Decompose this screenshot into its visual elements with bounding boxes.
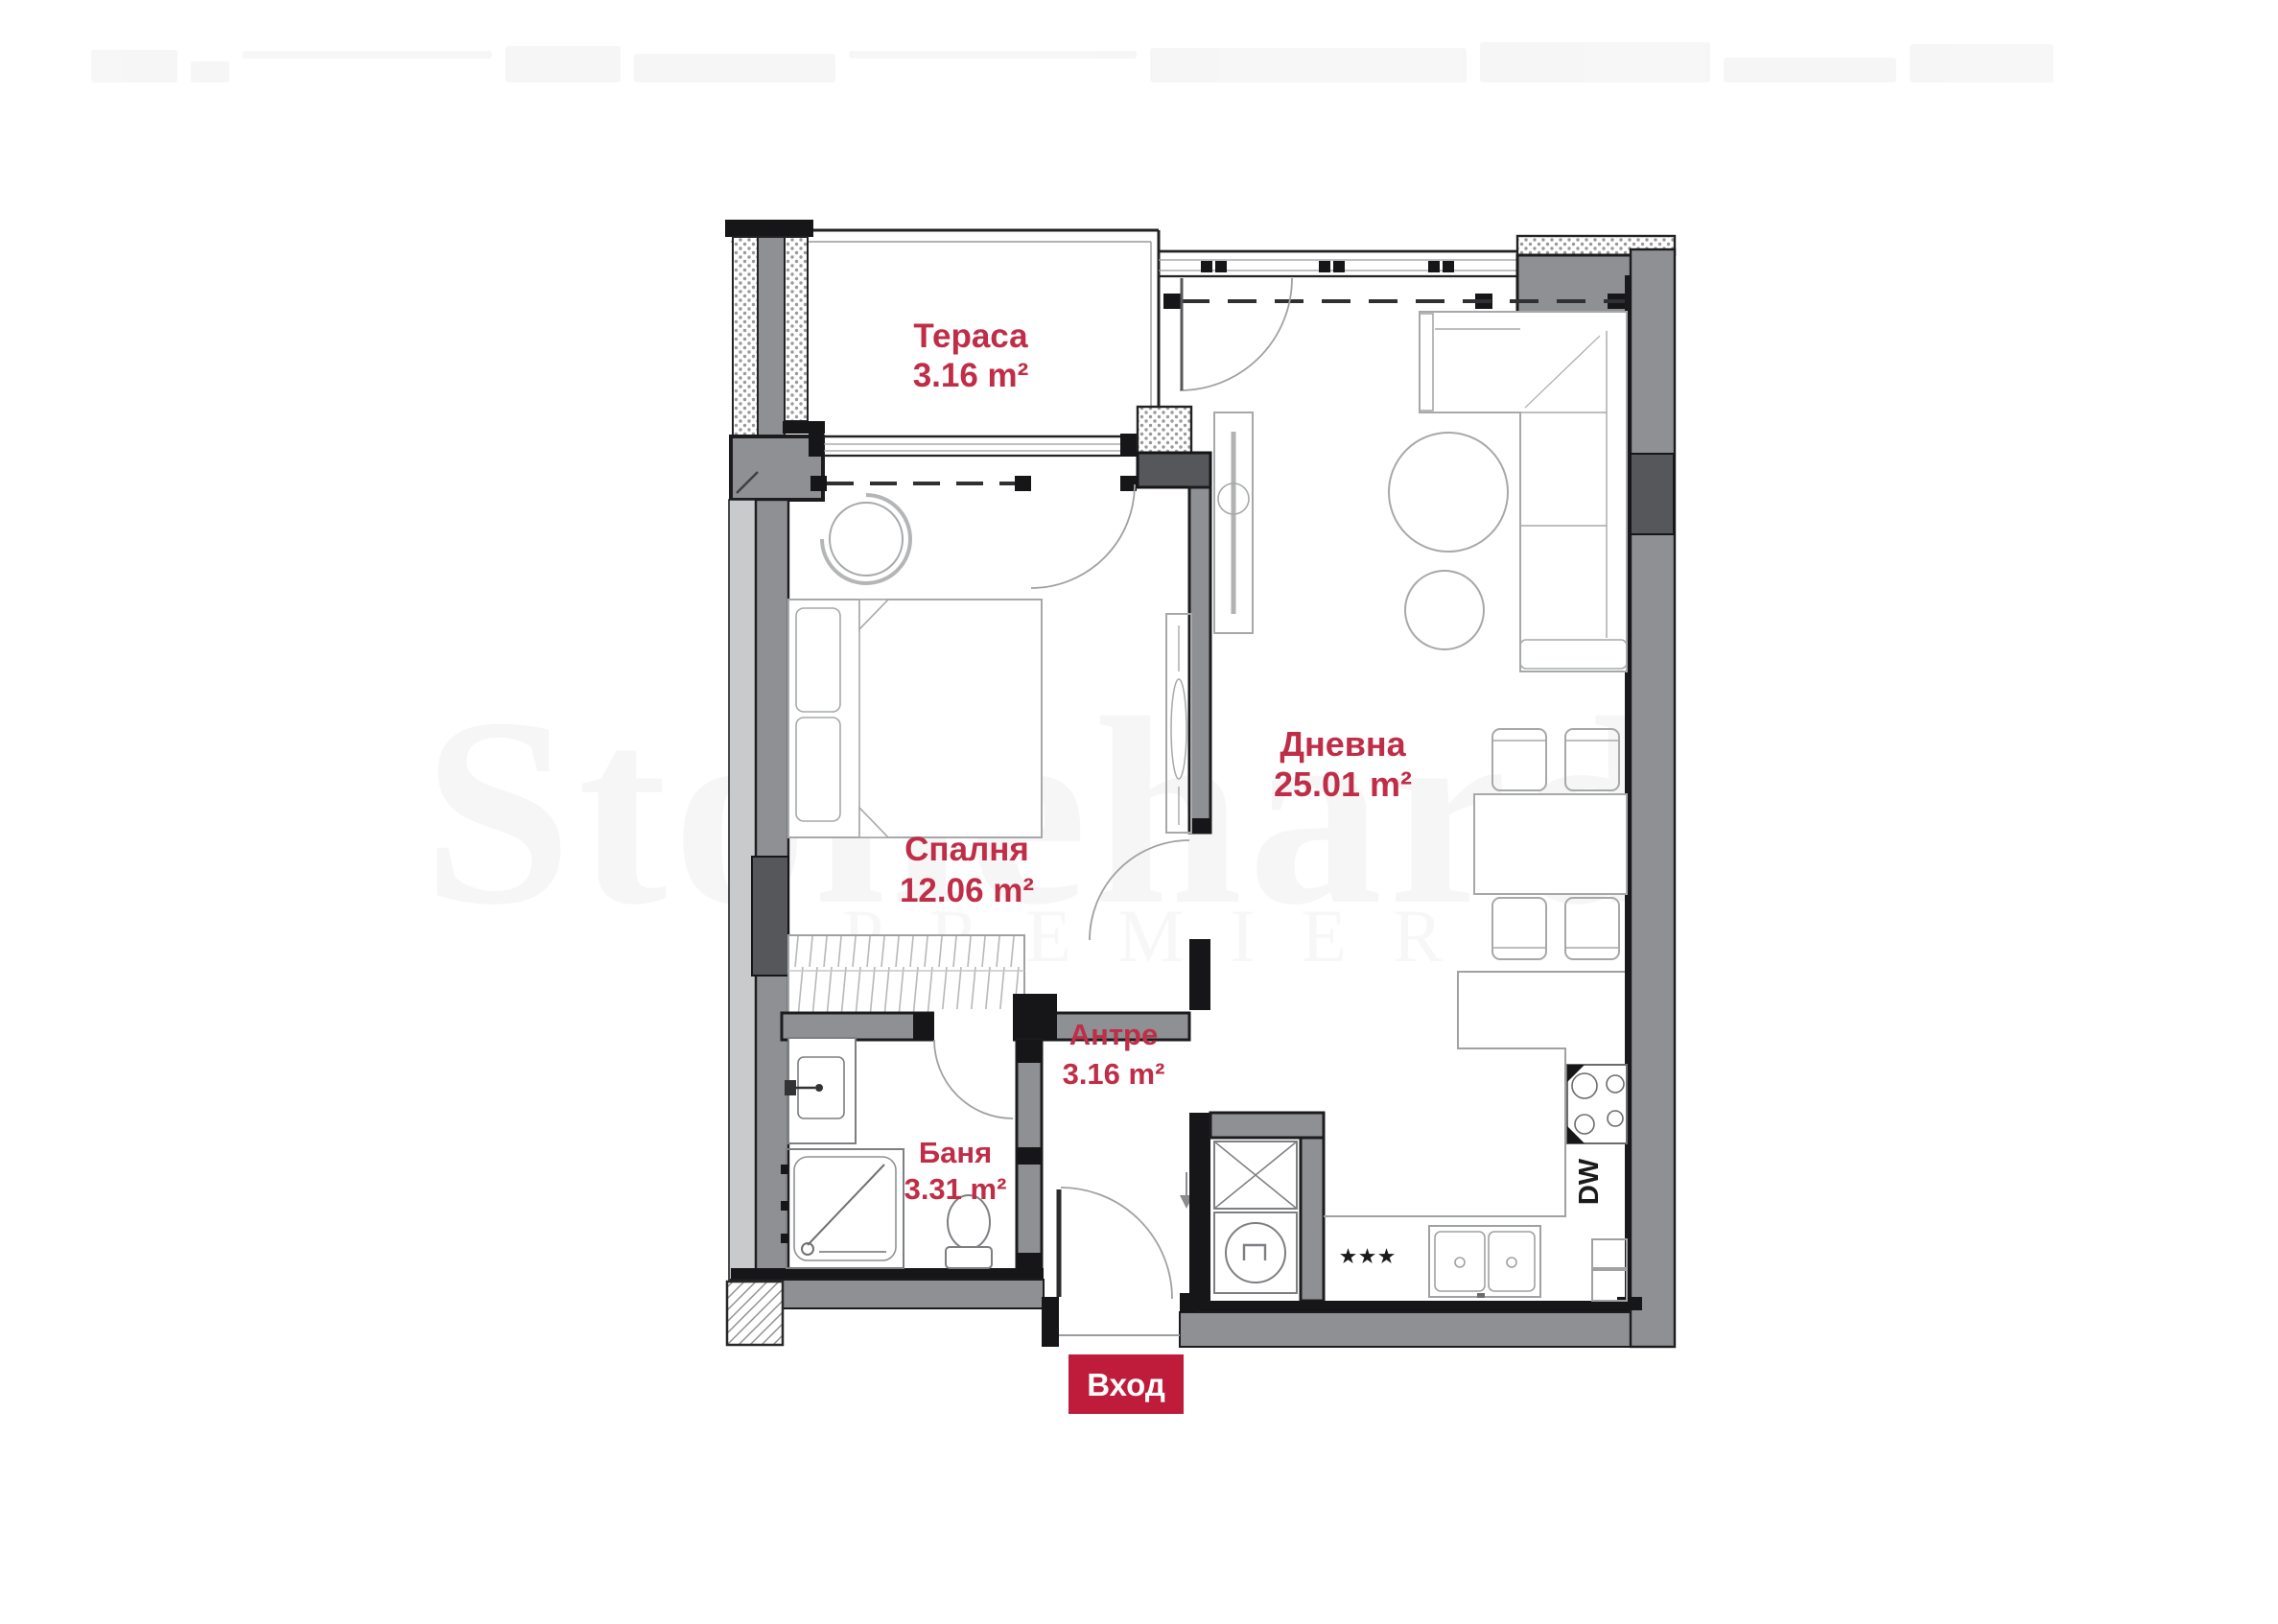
toilet bbox=[946, 1195, 992, 1268]
wall-insulation bbox=[733, 237, 758, 440]
coffee-table-large bbox=[1389, 433, 1508, 552]
bathroom-label: Баня bbox=[919, 1136, 992, 1169]
living-label: Дневна bbox=[1280, 724, 1406, 764]
sink-tap bbox=[1477, 1293, 1485, 1298]
entry-door-arc bbox=[1061, 1188, 1172, 1299]
entrance-badge-label: Вход bbox=[1087, 1367, 1165, 1402]
armchair-back bbox=[822, 495, 910, 583]
wall-cap bbox=[725, 220, 813, 237]
sofa bbox=[1420, 312, 1627, 671]
bathroom-area: 3.31 m² bbox=[904, 1172, 1007, 1206]
closet bbox=[1189, 1113, 1324, 1301]
floor-plan: Stonehard PREMIER bbox=[0, 0, 2278, 1624]
armchair bbox=[830, 503, 903, 576]
stars-label: ★★★ bbox=[1340, 1247, 1397, 1267]
wall-hatch-corner bbox=[727, 1282, 783, 1345]
wall-insulation bbox=[785, 237, 808, 421]
wall-terrace-living-column bbox=[1138, 407, 1210, 487]
shower bbox=[781, 1149, 904, 1268]
terrace-door-arc bbox=[1031, 484, 1135, 588]
wardrobe bbox=[788, 935, 1024, 1016]
dishwasher-label: DW bbox=[1574, 1158, 1605, 1205]
living-area: 25.01 m² bbox=[1274, 765, 1412, 804]
wall-closet-top bbox=[1210, 1113, 1324, 1138]
bedroom-area: 12.06 m² bbox=[900, 872, 1034, 909]
wall-closet-left bbox=[1189, 1113, 1210, 1301]
bedroom-label: Спалня bbox=[904, 831, 1029, 868]
wall-dark-segment-right bbox=[1631, 454, 1674, 534]
vanity-sink bbox=[785, 1038, 856, 1143]
terrace-label: Тераса bbox=[913, 318, 1028, 355]
wall-bathroom-bottom bbox=[731, 1268, 1044, 1280]
wall-dark-segment bbox=[752, 857, 788, 976]
entrance-badge: Вход bbox=[1069, 1354, 1184, 1414]
bathroom-door-opening bbox=[934, 1009, 1013, 1044]
wall-closet-right bbox=[1301, 1138, 1324, 1301]
wall-right bbox=[1631, 249, 1675, 1347]
faucet bbox=[785, 1080, 796, 1095]
bedroom-terrace-window bbox=[809, 434, 1137, 588]
dining-table bbox=[1474, 794, 1627, 894]
living-terrace-door-arc bbox=[1180, 278, 1292, 390]
hallway bbox=[1059, 1172, 1193, 1299]
wall-bottom bbox=[1042, 1293, 1674, 1347]
coffee-table-small bbox=[1405, 571, 1484, 649]
hallway-area: 3.16 m² bbox=[1063, 1057, 1165, 1091]
bathroom-door-arc bbox=[934, 1040, 1013, 1118]
base-cabinet bbox=[1592, 1270, 1627, 1301]
base-cabinet bbox=[1592, 1239, 1627, 1268]
wall-core bbox=[758, 237, 785, 440]
bed bbox=[788, 600, 1042, 837]
hallway-label: Антре bbox=[1069, 1018, 1158, 1051]
terrace-area: 3.16 m² bbox=[913, 357, 1029, 394]
